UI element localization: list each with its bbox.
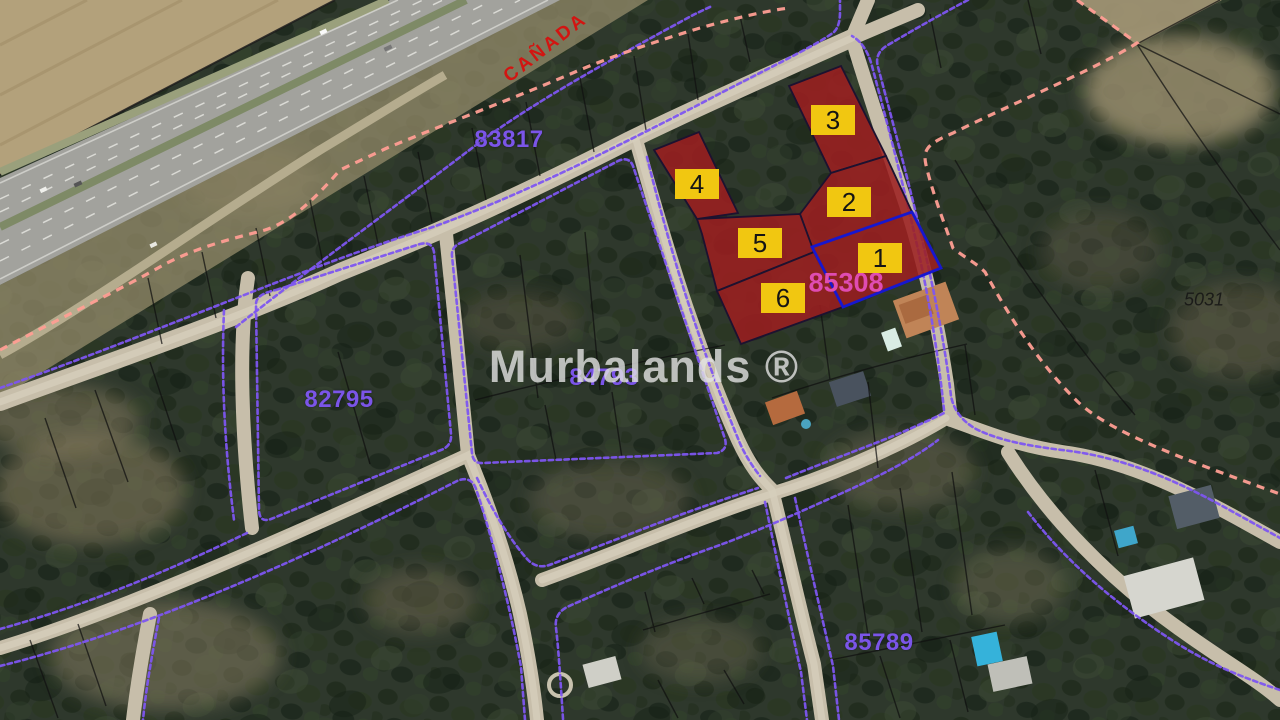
plot-chip-5[interactable]: 5 xyxy=(738,228,782,258)
map-canvas[interactable]: 83817 82795 84793 85789 85308 5031 CAÑAD… xyxy=(0,0,1280,720)
parcel-label-85789: 85789 xyxy=(844,629,913,657)
brand-watermark: Murbalands ® xyxy=(489,341,799,393)
plot-chip-1[interactable]: 1 xyxy=(858,243,902,273)
parcel-label-83817: 83817 xyxy=(474,126,543,154)
plot-chip-4[interactable]: 4 xyxy=(675,169,719,199)
plot-chip-3[interactable]: 3 xyxy=(811,105,855,135)
plot-chip-6[interactable]: 6 xyxy=(761,283,805,313)
plot-chip-2[interactable]: 2 xyxy=(827,187,871,217)
adjacent-parcel-label: 5031 xyxy=(1184,290,1224,311)
parcel-label-82795: 82795 xyxy=(304,386,373,414)
